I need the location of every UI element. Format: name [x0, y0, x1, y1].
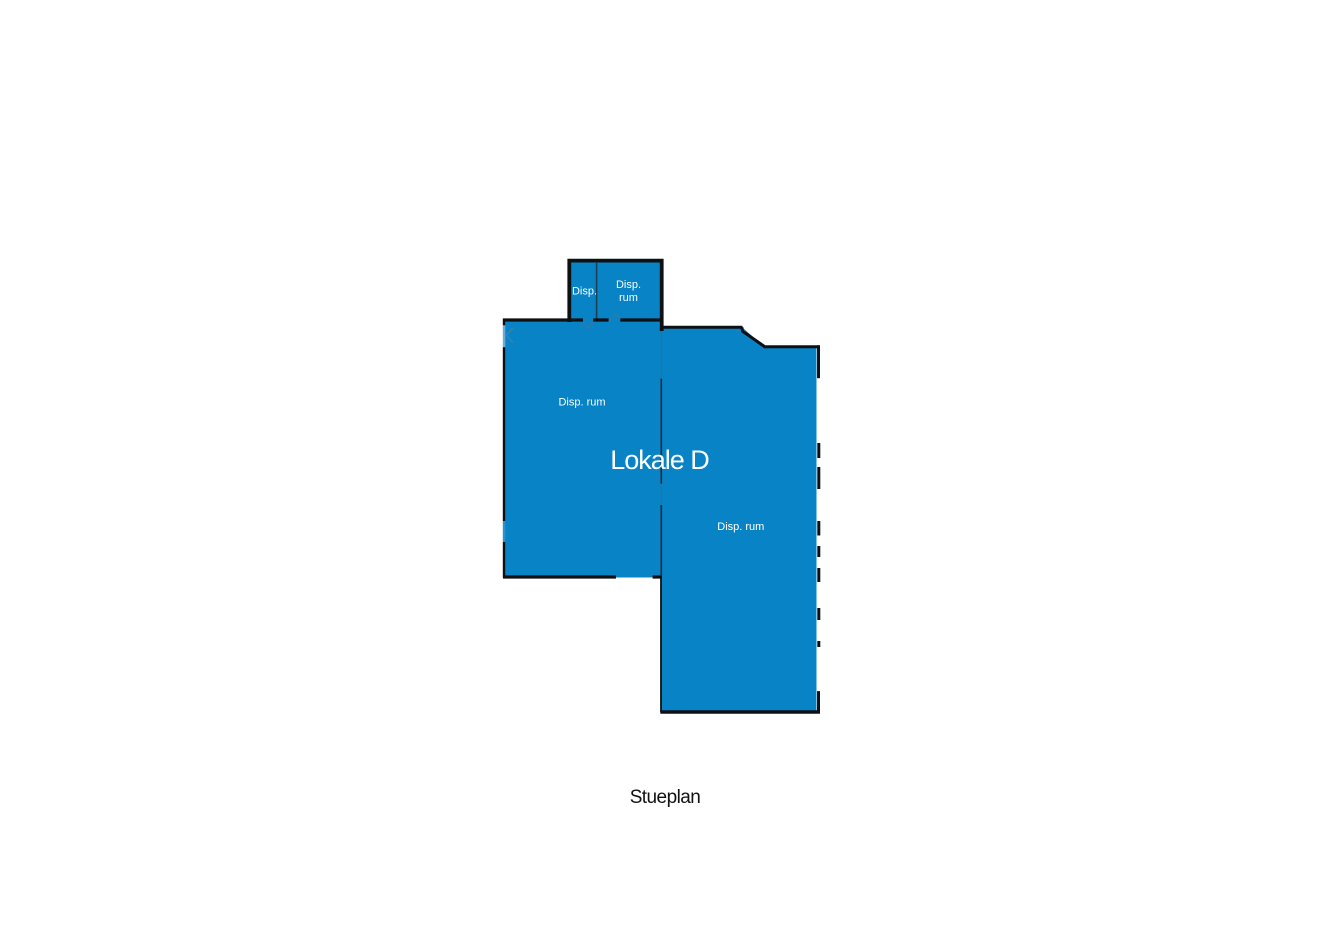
- svg-text:Lokale D: Lokale D: [610, 445, 709, 475]
- svg-text:rum: rum: [619, 292, 638, 304]
- svg-text:Disp. rum: Disp. rum: [558, 396, 605, 408]
- svg-text:Stueplan: Stueplan: [630, 787, 701, 808]
- svg-text:Disp.: Disp.: [572, 285, 597, 297]
- svg-text:Disp.: Disp.: [616, 279, 641, 291]
- svg-text:Disp. rum: Disp. rum: [717, 521, 764, 533]
